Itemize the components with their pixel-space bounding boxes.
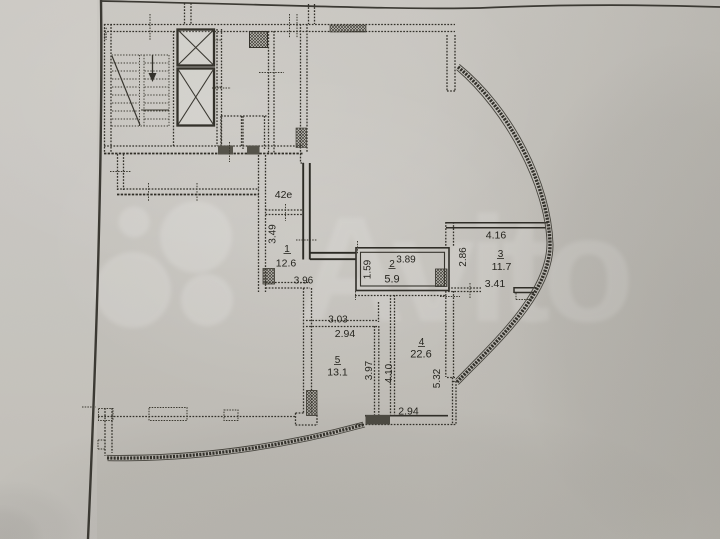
svg-text:2.94: 2.94 <box>335 328 356 340</box>
svg-text:3.89: 3.89 <box>396 255 416 266</box>
svg-text:5.32: 5.32 <box>432 368 443 388</box>
svg-text:3.41: 3.41 <box>485 278 506 290</box>
svg-text:2.86: 2.86 <box>458 247 469 267</box>
svg-text:4.16: 4.16 <box>486 230 507 242</box>
svg-text:2.94: 2.94 <box>398 406 419 418</box>
svg-text:3.03: 3.03 <box>328 315 348 326</box>
svg-text:11.7: 11.7 <box>492 261 512 273</box>
svg-text:3.96: 3.96 <box>294 276 314 287</box>
svg-text:42е: 42е <box>275 189 293 201</box>
svg-text:13.1: 13.1 <box>327 367 348 379</box>
svg-text:5.9: 5.9 <box>384 274 399 286</box>
svg-text:1.59: 1.59 <box>363 259 374 279</box>
svg-text:3.97: 3.97 <box>364 360 375 380</box>
svg-text:ЛЛУ-1: ЛЛУ-1 <box>103 27 108 40</box>
svg-text:22.6: 22.6 <box>410 349 431 361</box>
svg-text:4.10: 4.10 <box>384 363 395 383</box>
svg-text:12.6: 12.6 <box>276 258 297 270</box>
svg-text:3.49: 3.49 <box>268 224 279 244</box>
